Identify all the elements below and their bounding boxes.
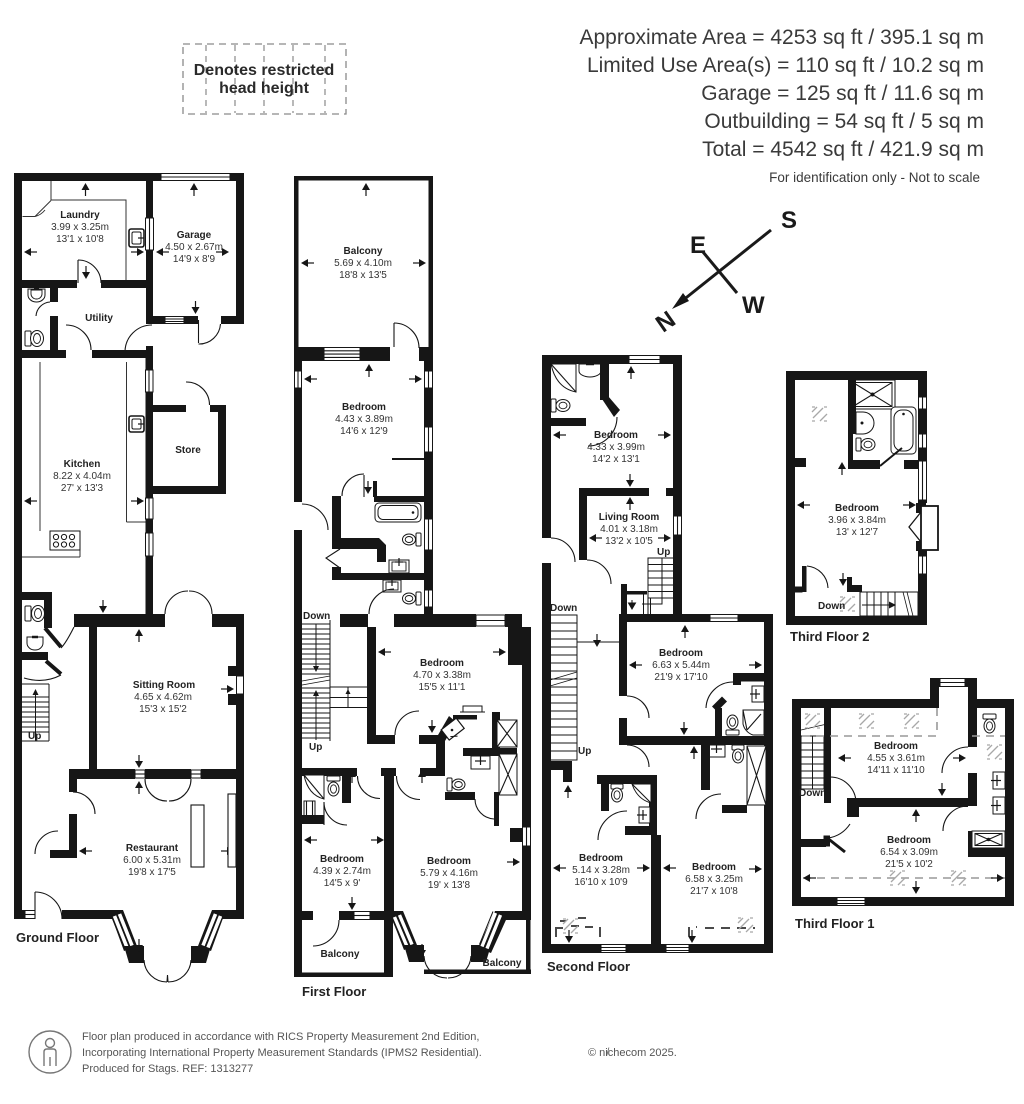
svg-text:Bedroom: Bedroom [594,430,638,441]
svg-text:Bedroom: Bedroom [874,741,918,752]
svg-text:Down: Down [303,611,330,622]
svg-text:Bedroom: Bedroom [427,856,471,867]
svg-text:Third Floor 1: Third Floor 1 [795,916,874,931]
svg-text:21'9 x 17'10: 21'9 x 17'10 [654,672,708,683]
svg-text:14'9 x 8'9: 14'9 x 8'9 [173,254,216,265]
svg-text:14'5 x 9': 14'5 x 9' [324,878,361,889]
svg-text:First Floor: First Floor [302,984,366,999]
svg-text:Bedroom: Bedroom [692,862,736,873]
svg-text:3.99 x 3.25m: 3.99 x 3.25m [51,222,109,233]
svg-text:6.63 x 5.44m: 6.63 x 5.44m [652,660,710,671]
svg-text:13'1 x 10'8: 13'1 x 10'8 [56,234,104,245]
svg-text:4.55 x 3.61m: 4.55 x 3.61m [867,753,925,764]
svg-text:Approximate Area = 4253 sq ft: Approximate Area = 4253 sq ft / 395.1 sq… [580,26,985,49]
svg-text:5.79 x 4.16m: 5.79 x 4.16m [420,868,478,879]
svg-text:6.54 x 3.09m: 6.54 x 3.09m [880,847,938,858]
svg-text:4.43 x 3.89m: 4.43 x 3.89m [335,414,393,425]
svg-text:21'7 x 10'8: 21'7 x 10'8 [690,886,738,897]
svg-text:Second Floor: Second Floor [547,959,630,974]
svg-text:Down: Down [550,603,577,614]
svg-text:4.33 x 3.99m: 4.33 x 3.99m [587,442,645,453]
svg-text:Floor plan produced in accorda: Floor plan produced in accordance with R… [82,1031,479,1043]
svg-text:14'11 x 11'10: 14'11 x 11'10 [867,765,925,776]
svg-text:Utility: Utility [85,313,113,324]
svg-text:Balcony: Balcony [344,246,383,257]
svg-text:Bedroom: Bedroom [342,402,386,413]
svg-text:W: W [742,292,765,319]
svg-text:S: S [781,207,797,234]
svg-text:Third Floor 2: Third Floor 2 [790,629,869,644]
svg-text:Produced for Stags. REF: 131: Produced for Stags. REF: 1313277 [82,1063,253,1075]
svg-text:Incorporating International Pr: Incorporating International Property Mea… [82,1047,482,1059]
svg-text:Bedroom: Bedroom [579,853,623,864]
svg-text:head height: head height [219,80,309,97]
svg-text:Sitting Room: Sitting Room [133,680,195,691]
svg-text:3.96 x 3.84m: 3.96 x 3.84m [828,515,886,526]
svg-text:19' x 13'8: 19' x 13'8 [428,880,471,891]
svg-text:4.70 x 3.38m: 4.70 x 3.38m [413,670,471,681]
svg-text:Balcony: Balcony [321,949,360,960]
svg-text:4.39 x 2.74m: 4.39 x 2.74m [313,866,371,877]
svg-text:5.14 x 3.28m: 5.14 x 3.28m [572,865,630,876]
svg-text:For identification only - Not: For identification only - Not to scale [769,170,980,185]
svg-text:Total = 4542 sq ft / 421.9 sq: Total = 4542 sq ft / 421.9 sq m [702,138,984,161]
svg-text:21'5 x 10'2: 21'5 x 10'2 [885,859,933,870]
svg-text:Ground Floor: Ground Floor [16,930,99,945]
svg-text:Up: Up [578,746,591,757]
svg-text:Up: Up [309,742,322,753]
svg-text:16'10 x 10'9: 16'10 x 10'9 [574,877,628,888]
svg-text:Restaurant: Restaurant [126,843,179,854]
svg-text:Outbuilding = 54 sq ft / 5 sq: Outbuilding = 54 sq ft / 5 sq m [704,110,984,133]
svg-text:Bedroom: Bedroom [659,648,703,659]
svg-text:Kitchen: Kitchen [64,459,101,470]
svg-text:13' x 12'7: 13' x 12'7 [836,527,879,538]
svg-text:4.50 x 2.67m: 4.50 x 2.67m [165,242,223,253]
svg-text:Bedroom: Bedroom [835,503,879,514]
svg-text:E: E [690,232,706,259]
svg-text:Laundry: Laundry [60,210,100,221]
svg-text:Balcony: Balcony [483,958,522,969]
svg-text:Bedroom: Bedroom [420,658,464,669]
svg-text:19'8 x 17'5: 19'8 x 17'5 [128,867,176,878]
svg-text:27' x 13'3: 27' x 13'3 [61,483,104,494]
svg-text:18'8 x 13'5: 18'8 x 13'5 [339,270,387,281]
svg-text:Bedroom: Bedroom [320,854,364,865]
svg-text:Bedroom: Bedroom [887,835,931,846]
svg-text:15'3 x 15'2: 15'3 x 15'2 [139,704,187,715]
svg-text:Up: Up [657,547,670,558]
svg-text:Living Room: Living Room [599,512,660,523]
svg-text:Garage = 125 sq ft / 11.6 sq m: Garage = 125 sq ft / 11.6 sq m [701,82,984,105]
svg-text:Denotes restricted: Denotes restricted [194,62,335,79]
svg-text:14'6 x 12'9: 14'6 x 12'9 [340,426,388,437]
svg-text:13'2 x 10'5: 13'2 x 10'5 [605,536,653,547]
svg-text:6.00 x 5.31m: 6.00 x 5.31m [123,855,181,866]
svg-text:Up: Up [28,731,41,742]
svg-text:4.65 x 4.62m: 4.65 x 4.62m [134,692,192,703]
svg-text:Down: Down [799,788,826,799]
svg-text:15'5 x 11'1: 15'5 x 11'1 [418,682,465,693]
svg-text:8.22 x 4.04m: 8.22 x 4.04m [53,471,111,482]
svg-text:4.01 x 3.18m: 4.01 x 3.18m [600,524,658,535]
svg-text:5.69 x 4.10m: 5.69 x 4.10m [334,258,392,269]
svg-text:© ni̸checom 2025.: © ni̸checom 2025. [588,1047,677,1059]
svg-text:Down: Down [818,601,845,612]
svg-text:14'2 x 13'1: 14'2 x 13'1 [592,454,640,465]
svg-text:Store: Store [175,445,201,456]
svg-text:Limited Use Area(s) = 110 sq f: Limited Use Area(s) = 110 sq ft / 10.2 s… [587,54,984,77]
svg-text:6.58 x 3.25m: 6.58 x 3.25m [685,874,743,885]
svg-text:Garage: Garage [177,230,212,241]
